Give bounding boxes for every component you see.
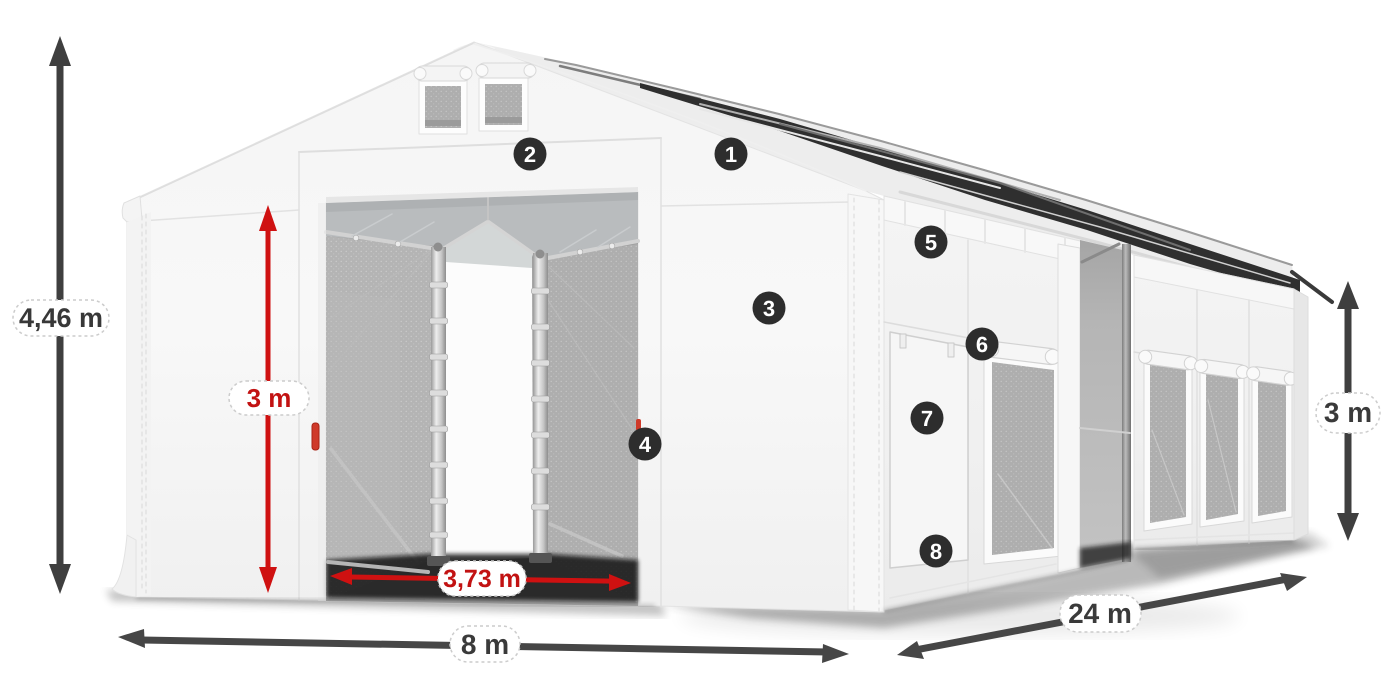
svg-text:4: 4 — [639, 432, 652, 457]
svg-text:3 m: 3 m — [1324, 397, 1372, 428]
svg-text:1: 1 — [725, 142, 737, 167]
svg-text:3,73 m: 3,73 m — [443, 565, 521, 593]
svg-text:2: 2 — [524, 142, 536, 167]
svg-text:4,46 m: 4,46 m — [19, 303, 103, 333]
svg-text:3: 3 — [763, 296, 775, 321]
svg-text:3 m: 3 m — [247, 383, 292, 413]
svg-text:8: 8 — [930, 539, 942, 564]
svg-text:24 m: 24 m — [1068, 598, 1132, 629]
svg-text:6: 6 — [976, 332, 988, 357]
svg-text:8 m: 8 m — [461, 629, 509, 660]
svg-text:7: 7 — [921, 406, 933, 431]
svg-text:5: 5 — [925, 230, 937, 255]
